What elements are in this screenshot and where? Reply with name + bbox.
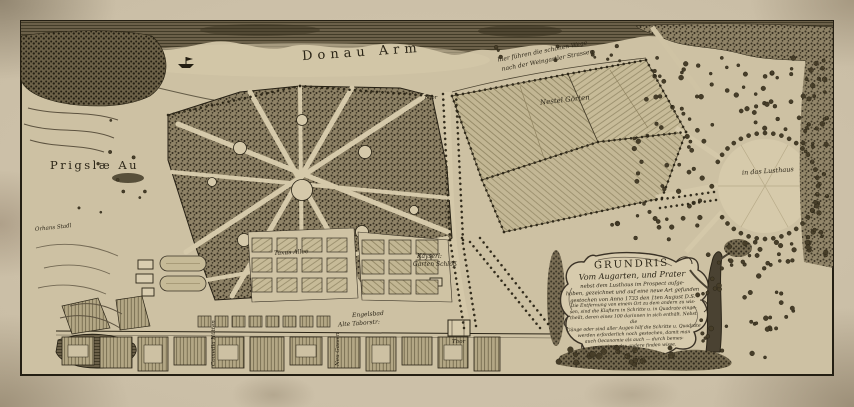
- label-kays-garten-line1: Käyserl:: [417, 254, 442, 260]
- label-thor-north: Thor: [424, 96, 437, 102]
- label-prigslae-au: Prigslæ Au: [50, 160, 139, 172]
- engraved-map-sheet: Donau Arm Prigslæ Au Nestel Görten hier …: [0, 0, 854, 407]
- label-thor-south: Thor: [452, 340, 465, 346]
- label-comedia-huetten: Comedia Hütten: [212, 320, 218, 366]
- label-kays-garten-line2: Garten Schlöß: [413, 262, 457, 268]
- cartouche: GRUNDRIS Vom Augarten, und Prater nebst …: [564, 257, 701, 353]
- label-neu-gassen: Neu Gassen: [336, 333, 342, 366]
- right-edge-woods: [800, 56, 833, 268]
- map-engraving: [0, 0, 854, 407]
